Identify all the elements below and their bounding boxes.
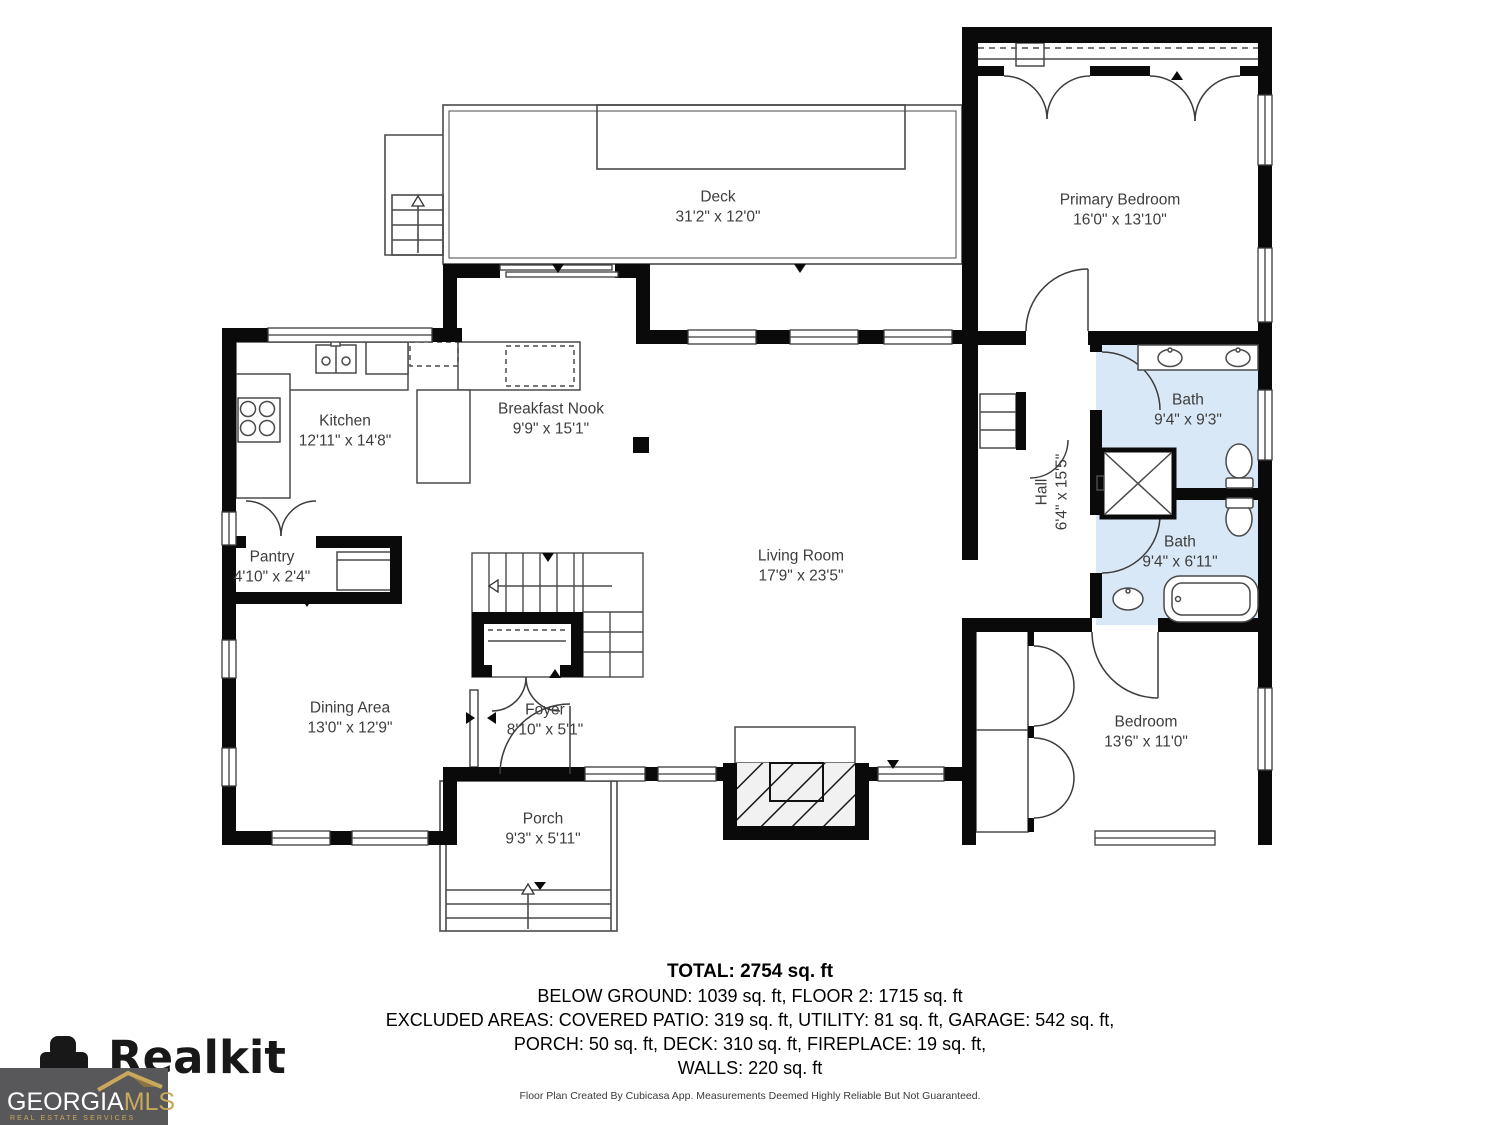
room-label-dining-area: Dining Area 13'0" x 12'9" bbox=[307, 699, 392, 740]
room-name: Porch bbox=[523, 811, 564, 828]
georgia-mls-logo: GEORGIAMLS REAL ESTATE SERVICES bbox=[0, 1068, 168, 1125]
real-estate-services-text: REAL ESTATE SERVICES bbox=[10, 1115, 135, 1122]
room-dims: 13'6" x 11'0" bbox=[1104, 733, 1188, 753]
georgia-text: GEORGIA bbox=[7, 1088, 124, 1116]
room-dims: 6'4" x 15'5" bbox=[1053, 454, 1073, 530]
room-dims: 13'0" x 12'9" bbox=[307, 719, 392, 739]
room-dims: 16'0" x 13'10" bbox=[1060, 211, 1181, 231]
room-name: Deck bbox=[700, 189, 735, 206]
room-label-pantry: Pantry 4'10" x 2'4" bbox=[234, 548, 310, 589]
room-name: Breakfast Nook bbox=[498, 401, 604, 418]
room-label-bedroom: Bedroom 13'6" x 11'0" bbox=[1104, 713, 1188, 754]
room-dims: 9'3" x 5'11" bbox=[505, 830, 580, 850]
room-dims: 8'10" x 5'1" bbox=[507, 721, 583, 741]
room-name: Dining Area bbox=[310, 700, 390, 717]
room-label-hall: Hall 6'4" x 15'5" bbox=[1033, 454, 1074, 530]
room-name: Kitchen bbox=[319, 413, 371, 430]
room-label-kitchen: Kitchen 12'11" x 14'8" bbox=[299, 412, 391, 453]
georgia-mls-wordmark: GEORGIAMLS bbox=[7, 1088, 175, 1117]
disclaimer: Floor Plan Created By Cubicasa App. Meas… bbox=[0, 1090, 1500, 1102]
room-dims: 9'4" x 6'11" bbox=[1142, 553, 1217, 573]
porch-outline bbox=[440, 781, 617, 931]
room-name: Bedroom bbox=[1115, 714, 1178, 731]
room-name: Bath bbox=[1172, 392, 1204, 409]
room-label-deck: Deck 31'2" x 12'0" bbox=[675, 188, 760, 229]
floor-plan-page: Deck 31'2" x 12'0" Primary Bedroom 16'0"… bbox=[0, 0, 1500, 1125]
room-label-bath-1: Bath 9'4" x 9'3" bbox=[1154, 391, 1222, 432]
room-label-porch: Porch 9'3" x 5'11" bbox=[505, 810, 580, 851]
total-area: TOTAL: 2754 sq. ft bbox=[0, 961, 1500, 983]
summary-line-2: EXCLUDED AREAS: COVERED PATIO: 319 sq. f… bbox=[0, 1010, 1500, 1031]
room-dims: 9'9" x 15'1" bbox=[498, 420, 604, 440]
room-label-breakfast-nook: Breakfast Nook 9'9" x 15'1" bbox=[498, 400, 604, 441]
room-name: Hall bbox=[1034, 479, 1051, 506]
room-label-bath-2: Bath 9'4" x 6'11" bbox=[1142, 533, 1217, 574]
deck-outline bbox=[385, 105, 962, 264]
room-dims: 12'11" x 14'8" bbox=[299, 432, 391, 452]
room-dims: 4'10" x 2'4" bbox=[234, 568, 310, 588]
room-dims: 17'9" x 23'5" bbox=[758, 567, 844, 587]
room-label-living-room: Living Room 17'9" x 23'5" bbox=[758, 547, 844, 588]
room-name: Living Room bbox=[758, 548, 844, 565]
room-label-primary-bedroom: Primary Bedroom 16'0" x 13'10" bbox=[1060, 191, 1181, 232]
floor-plan-drawing bbox=[0, 0, 1500, 1125]
mls-text: MLS bbox=[124, 1088, 175, 1116]
room-name: Bath bbox=[1164, 534, 1196, 551]
room-name: Pantry bbox=[250, 549, 295, 566]
room-dims: 9'4" x 9'3" bbox=[1154, 411, 1222, 431]
room-name: Primary Bedroom bbox=[1060, 192, 1181, 209]
fireplace bbox=[735, 727, 855, 826]
room-label-foyer: Foyer 8'10" x 5'1" bbox=[507, 701, 583, 742]
summary-line-1: BELOW GROUND: 1039 sq. ft, FLOOR 2: 1715… bbox=[0, 986, 1500, 1007]
room-dims: 31'2" x 12'0" bbox=[675, 208, 760, 228]
room-name: Foyer bbox=[525, 702, 565, 719]
